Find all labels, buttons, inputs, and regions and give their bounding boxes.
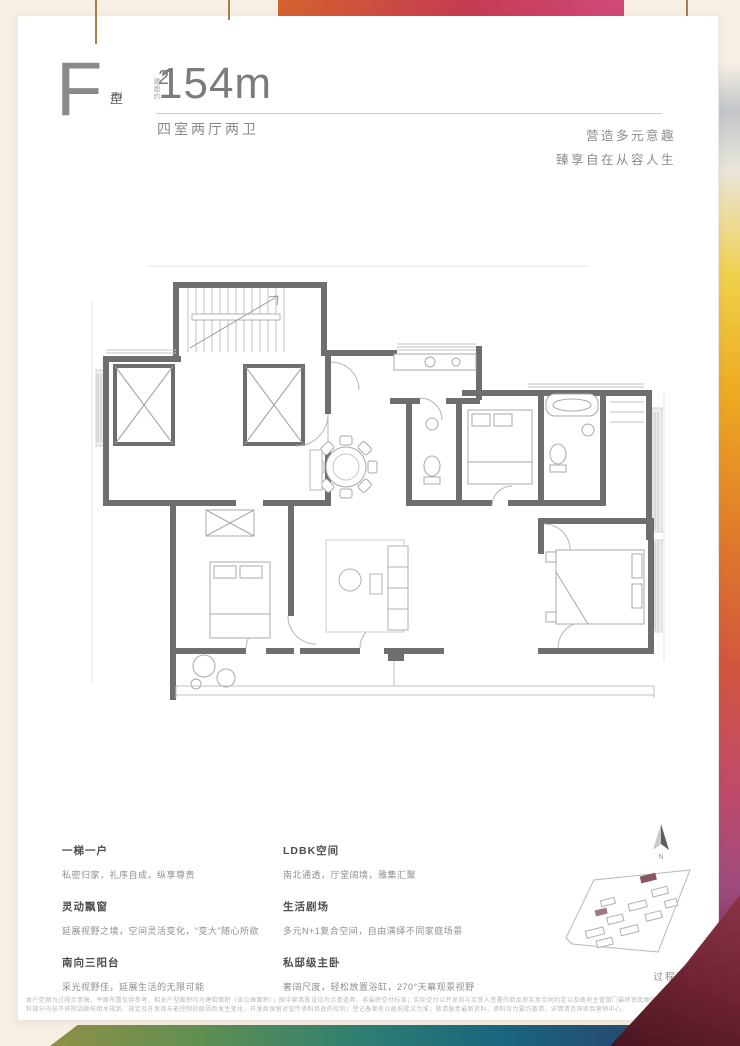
- feature-desc: 多元N+1复合空间，自由演绎不同家庭场景: [283, 924, 563, 937]
- feature-title: LDBK空间: [283, 843, 563, 858]
- living-room: [326, 540, 408, 632]
- bedroom-3: [206, 510, 270, 638]
- area-value: 154m2: [158, 62, 170, 106]
- feature-title: 一梯一户: [62, 843, 292, 858]
- elevator-shafts: [115, 366, 303, 444]
- balcony-lounge: [191, 655, 235, 689]
- top-hairline-1: [95, 0, 97, 44]
- bedroom-2: [468, 410, 532, 484]
- area-superscript: 2: [158, 67, 170, 89]
- feature-life-theater: 生活剧场 多元N+1复合空间，自由演绎不同家庭场景: [283, 899, 563, 937]
- feature-desc: 延展视野之境，空间灵活变化，“变大”随心所欲: [62, 924, 292, 937]
- feature-title: 灵动飘窗: [62, 899, 292, 914]
- unit-type-char-2: 型: [110, 92, 123, 105]
- top-hairline-2: [228, 0, 230, 20]
- disclaimer-line-2: 料部分内容不排除因政府相关规划、规定及开发商未能控制的原因而发生变化，开发商保留…: [26, 1006, 714, 1015]
- feature-ldbk-space: LDBK空间 南北通透，厅堂阔境，雅集汇聚: [283, 843, 563, 881]
- hall-cabinet: [310, 450, 322, 490]
- slogan-line-2: 臻享自在从容人生: [420, 148, 676, 172]
- header-rule: [156, 113, 662, 114]
- poster-page: F 户 型 建面约 154m2 四室两厅两卫 营造多元意趣 臻享自在从容人生: [0, 0, 740, 1046]
- walls: [103, 282, 654, 700]
- feature-desc: 奢阔尺度，轻松放置浴缸，270°天幕观景视野: [283, 980, 563, 993]
- poster-card: F 户 型 建面约 154m2 四室两厅两卫 营造多元意趣 臻享自在从容人生: [18, 16, 718, 1020]
- feature-title: 生活剧场: [283, 899, 563, 914]
- stairs: [188, 288, 284, 352]
- site-plan-diagram: [560, 866, 706, 958]
- feature-bay-window: 灵动飘窗 延展视野之境，空间灵活变化，“变大”随心所欲: [62, 899, 292, 937]
- balcony-rail: [176, 661, 654, 698]
- feature-desc: 采光视野佳，延展生活的无限可能: [62, 980, 292, 993]
- feature-one-elevator: 一梯一户 私密归家，礼序自成，纵享尊贵: [62, 843, 292, 881]
- right-gradient-strip: [719, 62, 740, 1046]
- slogan: 营造多元意趣 臻享自在从容人生: [420, 124, 676, 172]
- slogan-line-1: 营造多元意趣: [420, 124, 676, 148]
- floor-plan: [88, 262, 668, 710]
- unit-letter: F: [56, 52, 102, 128]
- bathroom-1: [424, 418, 440, 484]
- kitchen: [394, 354, 476, 370]
- dining-table: [315, 436, 377, 498]
- compass-north-icon: N: [648, 822, 674, 862]
- disclaimer: 本户型图为过程示意稿，平面布置仅供参考，相关户型面积均为建筑面积（含公摊面积）；…: [26, 997, 714, 1015]
- closet: [610, 402, 644, 422]
- top-hairline-3: [686, 0, 688, 16]
- feature-desc: 私密归家，礼序自成，纵享尊贵: [62, 868, 292, 881]
- master-bedroom: [546, 550, 644, 624]
- svg-text:N: N: [658, 854, 663, 861]
- feature-title: 私邸级主卧: [283, 955, 563, 970]
- feature-desc: 南北通透，厅堂阔境，雅集汇聚: [283, 868, 563, 881]
- feature-south-balconies: 南向三阳台 采光视野佳，延展生活的无限可能: [62, 955, 292, 993]
- top-gradient-band: [278, 0, 624, 17]
- layout-text: 四室两厅两卫: [157, 119, 259, 139]
- feature-master-suite: 私邸级主卧 奢阔尺度，轻松放置浴缸，270°天幕观景视野: [283, 955, 563, 993]
- disclaimer-line-1: 本户型图为过程示意稿，平面布置仅供参考，相关户型面积均为建筑面积（含公摊面积）；…: [26, 997, 714, 1006]
- master-bathroom: [546, 394, 598, 472]
- feature-title: 南向三阳台: [62, 955, 292, 970]
